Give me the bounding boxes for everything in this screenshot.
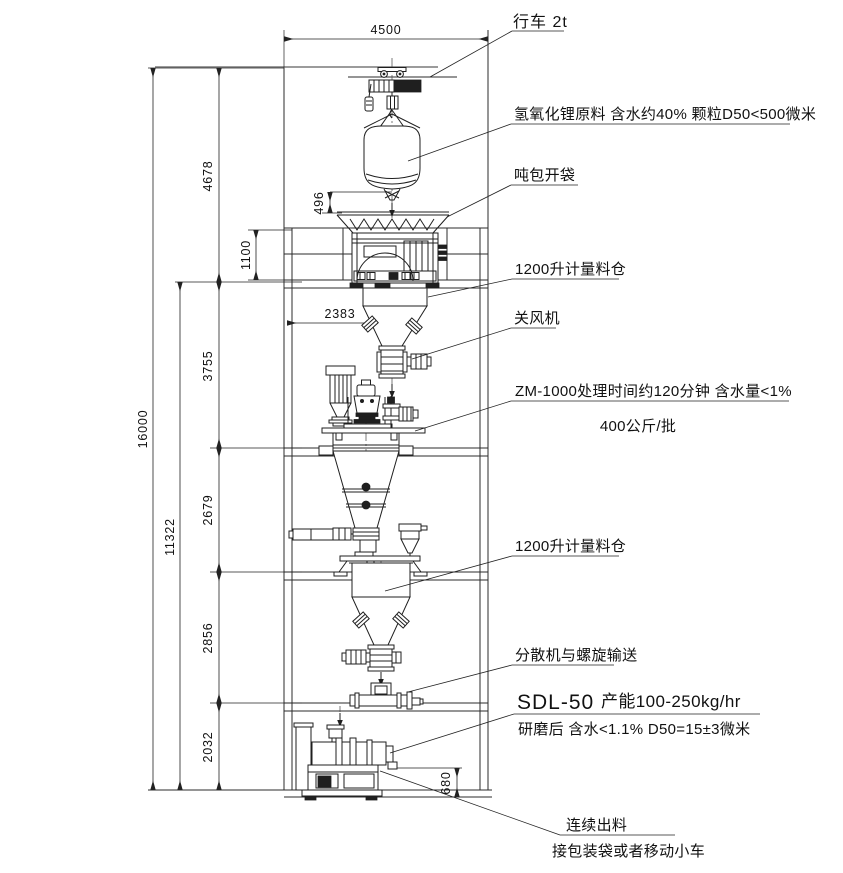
- label-metering-silo-2: 1200升计量料仓: [515, 538, 626, 555]
- discharge-actuator: [289, 528, 353, 540]
- label-after-grinding: 研磨后 含水<1.1% D50=15±3微米: [518, 721, 750, 738]
- rotary-valve-2: [342, 645, 401, 671]
- label-crane: 行车 2t: [513, 13, 568, 31]
- annotation-labels: 行车 2t 氢氧化锂原料 含水约40% 颗粒D50<500微米 吨包开袋 120…: [513, 13, 816, 860]
- label-receiving: 接包装袋或者移动小车: [552, 843, 705, 860]
- dim-crane-span: 4500: [370, 23, 401, 37]
- dim-section-b: 2679: [201, 494, 215, 525]
- vessel-lid: [322, 428, 425, 433]
- filter-unit: [326, 366, 355, 426]
- discharge-chute: [399, 524, 427, 558]
- dim-discharge-height: 680: [439, 771, 453, 794]
- label-continuous-discharge: 连续出料: [566, 817, 627, 834]
- zm1000-mixer: [289, 366, 427, 558]
- label-bag-opening: 吨包开袋: [514, 167, 575, 184]
- dimension-lines: 16000 11322 4678 3755 2679 2856 2032 110…: [136, 23, 488, 797]
- trunnion-lug-right: [399, 446, 413, 455]
- label-zm1000: ZM-1000处理时间约120分钟 含水量<1%: [515, 383, 792, 400]
- trunnion-lug-left: [319, 446, 333, 455]
- leader-lines: [380, 31, 790, 835]
- dim-section-a: 3755: [201, 350, 215, 381]
- mill-discharge: [388, 762, 397, 769]
- sdl50-mill: [294, 723, 397, 800]
- label-rotary-valve: 关风机: [514, 310, 560, 327]
- dim-bag-clearance: 496: [312, 191, 326, 214]
- dim-section-c: 2856: [201, 622, 215, 653]
- dim-section-d: 2032: [201, 731, 215, 762]
- metering-silo-1: [362, 288, 431, 398]
- metering-silo-2: [334, 556, 427, 686]
- dim-total-height: 16000: [136, 410, 150, 449]
- label-sdl50-model: SDL-50: [517, 691, 594, 714]
- dim-silo-offset: 2383: [324, 307, 355, 321]
- dim-upper-section: 4678: [201, 160, 215, 191]
- bag-opening-hopper: [337, 212, 449, 233]
- rotary-valve-1: [377, 346, 431, 378]
- mill-chamber: [312, 742, 386, 765]
- label-metering-silo-1: 1200升计量料仓: [515, 261, 626, 278]
- pendant-control: [365, 97, 373, 111]
- lid-valves: [383, 396, 418, 428]
- label-raw-material: 氢氧化锂原料 含水约40% 颗粒D50<500微米: [514, 106, 816, 123]
- label-batch: 400公斤/批: [600, 418, 676, 435]
- discharge-valve: [353, 528, 379, 557]
- crane-hoist: [365, 68, 421, 119]
- tower-structure: [148, 30, 492, 797]
- screw-conveyor: [337, 683, 423, 727]
- dim-platform: 1100: [239, 240, 253, 270]
- process-tower-elevation: 16000 11322 4678 3755 2679 2856 2032 110…: [0, 0, 843, 873]
- cad-drawing: 16000 11322 4678 3755 2679 2856 2032 110…: [0, 0, 843, 873]
- label-sdl50-capacity: 产能100-250kg/hr: [601, 692, 741, 711]
- label-disperser: 分散机与螺旋输送: [515, 647, 637, 664]
- bag-dump-station: [350, 233, 447, 288]
- dim-lower-total: 11322: [163, 518, 177, 556]
